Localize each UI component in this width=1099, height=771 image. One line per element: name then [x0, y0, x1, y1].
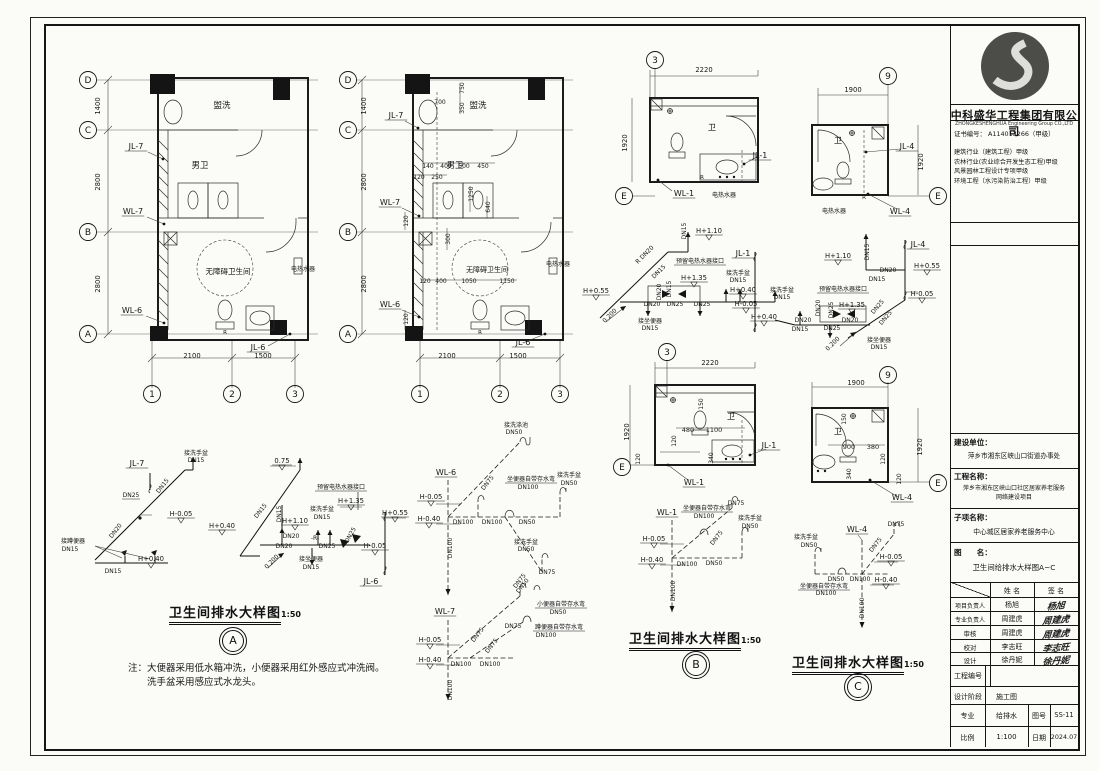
svg-text:接洗手盆: 接洗手盆	[557, 471, 581, 479]
svg-text:男卫: 男卫	[191, 161, 209, 171]
drawing-label: R	[862, 195, 866, 201]
drawing-label: 1100	[706, 426, 723, 434]
svg-text:电热水器: 电热水器	[546, 260, 570, 268]
drawing-label: DN25	[319, 543, 336, 550]
qualification-2: 农林行业(农业综合开发生态工程)甲级	[954, 158, 1076, 168]
drawing-label: R DN20	[634, 244, 655, 265]
svg-text:DN100: DN100	[670, 581, 677, 602]
drawing-label: H-0.05	[416, 636, 444, 649]
plan-d2-drain	[812, 382, 930, 497]
grid-bubble-3: 3	[552, 386, 569, 403]
svg-text:DN75: DN75	[470, 626, 486, 644]
svg-text:电热水器: 电热水器	[822, 207, 846, 215]
svg-text:R: R	[862, 195, 866, 201]
svg-text:2800: 2800	[360, 173, 368, 190]
svg-text:150: 150	[841, 413, 848, 425]
drawing-label: H+0.55	[913, 262, 941, 275]
drawing-label: 2100	[438, 352, 455, 360]
drawing-label: 750	[459, 82, 466, 94]
drawing-label: H-0.05	[877, 553, 905, 566]
svg-text:2220: 2220	[695, 66, 712, 74]
drawing-label: DN75	[480, 474, 496, 492]
drawing-label: H+0.40	[750, 313, 778, 326]
svg-text:JL-7: JL-7	[388, 111, 404, 120]
svg-text:JL-1: JL-1	[752, 151, 768, 160]
svg-text:C: C	[345, 126, 351, 136]
svg-text:1920: 1920	[623, 423, 631, 440]
drawing-label: JL-7	[385, 111, 408, 120]
table-corner-diagonal	[950, 582, 990, 597]
header-name: 姓 名	[990, 586, 1034, 596]
drawing-label: DN20	[815, 299, 822, 316]
drawing-label: DN15	[105, 568, 122, 575]
svg-text:DN50: DN50	[828, 576, 845, 583]
drawing-label: 1920	[917, 153, 925, 170]
drawing-label: WL-7	[434, 607, 457, 616]
drawing-label: DN75	[539, 569, 556, 576]
drawing-label: H+1.35	[337, 497, 365, 510]
note-line-1: 注：大便器采用低水箱冲洗，小便器采用红外感应式冲洗阀。	[128, 662, 458, 676]
svg-text:电热水器: 电热水器	[291, 265, 315, 273]
grid-bubble-1: 1	[412, 386, 429, 403]
drawing-label: 坐便器自带存水弯	[505, 475, 557, 483]
drawing-name-value: 卫生间给排水大样图A~C	[950, 562, 1078, 573]
drawing-label: DN50	[519, 519, 536, 526]
svg-text:DN50: DN50	[561, 480, 578, 487]
svg-text:DN25: DN25	[870, 298, 886, 315]
svg-text:卫: 卫	[727, 412, 735, 421]
svg-text:0.200: 0.200	[263, 553, 280, 570]
drawing-label: R	[223, 330, 227, 336]
role-2: 专业负责人	[950, 615, 990, 624]
svg-text:450: 450	[477, 163, 489, 170]
svg-text:H+0.40: H+0.40	[138, 555, 164, 563]
drawing-label: H-0.05	[908, 290, 936, 303]
plan-a-walls	[150, 74, 308, 341]
drawing-label: DN100	[850, 576, 871, 583]
drawing-label: DN25	[122, 492, 140, 499]
plan-a-grid	[96, 76, 318, 388]
svg-text:2100: 2100	[438, 352, 455, 360]
date-label: 日期	[1028, 733, 1050, 743]
svg-text:DN50: DN50	[506, 429, 523, 436]
drawing-label: 120	[413, 174, 425, 181]
svg-text:WL-4: WL-4	[890, 207, 910, 216]
drawing-label: 2220	[695, 66, 712, 74]
grid-bubble-9: 9	[880, 367, 897, 384]
qualification-3: 风景园林工程设计专项甲级	[954, 167, 1076, 177]
svg-text:1400: 1400	[360, 97, 368, 114]
drawing-label: DN15	[314, 514, 331, 521]
svg-text:JL-7: JL-7	[128, 142, 144, 151]
svg-text:1920: 1920	[621, 134, 629, 151]
drawing-label: 1920	[621, 134, 629, 151]
svg-text:120: 120	[413, 174, 425, 181]
grid-bubble-A: A	[340, 326, 357, 343]
grid-bubble-E: E	[930, 188, 947, 205]
drawing-label: 卫	[727, 412, 735, 421]
drawing-label: 0.200	[263, 553, 280, 570]
drawing-label: DN15	[681, 222, 688, 239]
svg-text:DN50: DN50	[742, 523, 759, 530]
svg-text:H+1.10: H+1.10	[282, 517, 308, 525]
drawing-label: DN100	[694, 513, 715, 520]
svg-text:JL-1: JL-1	[761, 441, 777, 450]
svg-text:340: 340	[708, 452, 715, 464]
drawing-label: 坐便器自带存水弯	[798, 582, 850, 590]
drawing-label: 2800	[94, 275, 102, 292]
drawing-label: JL-7	[125, 142, 148, 151]
svg-text:DN100: DN100	[447, 538, 454, 559]
figure-title-a: 卫生间排水大样图1:50	[155, 602, 315, 625]
svg-text:接坐便器: 接坐便器	[299, 555, 323, 563]
stage-label: 设计阶段	[954, 692, 982, 702]
svg-text:DN15: DN15	[774, 294, 791, 301]
svg-text:3: 3	[664, 348, 670, 358]
drawing-label: 盥洗	[469, 100, 487, 111]
drawing-label: WL-1	[656, 508, 679, 517]
drawing-label: 预留电热水器接口	[674, 257, 726, 265]
drawing-label: 接洗手盆	[726, 269, 750, 277]
svg-text:DN75: DN75	[728, 500, 745, 507]
svg-text:250: 250	[431, 174, 443, 181]
drawing-label: JL-4	[907, 240, 930, 249]
svg-text:卫: 卫	[708, 123, 716, 132]
svg-text:H-0.40: H-0.40	[875, 576, 898, 584]
drawing-label: H+0.40	[208, 522, 236, 535]
drawing-label: WL-4	[846, 525, 869, 534]
drawing-label: 0.75	[272, 457, 292, 470]
drawing-label: DN75	[728, 500, 745, 507]
svg-text:DN25: DN25	[694, 301, 711, 308]
drawing-label: DN100	[453, 519, 474, 526]
svg-text:H-0.05: H-0.05	[643, 535, 666, 543]
svg-text:DN25: DN25	[123, 492, 140, 499]
svg-text:DN100: DN100	[518, 484, 539, 491]
sheet-no-label: 图号	[1028, 711, 1050, 721]
svg-text:DN15: DN15	[869, 276, 886, 283]
drawing-label: 400	[440, 163, 452, 170]
drawing-label: 0.200	[824, 335, 841, 352]
drawing-label: 340	[846, 468, 853, 480]
drawing-label: DN20	[108, 522, 124, 540]
svg-text:预留电热水器接口: 预留电热水器接口	[317, 483, 365, 491]
svg-text:DN25: DN25	[828, 301, 835, 318]
drawing-label: WL-6	[379, 300, 402, 309]
drawing-label: DN20	[283, 533, 300, 540]
svg-text:接洗手盆: 接洗手盆	[738, 514, 762, 522]
owner-value: 萍乡市湘东区峡山口街道办事处	[950, 450, 1078, 460]
figure-title-c-text: 卫生间排水大样图	[792, 652, 904, 675]
date-value: 2024.07	[1050, 733, 1078, 741]
svg-text:500: 500	[458, 163, 470, 170]
company-logo	[981, 32, 1049, 100]
drawing-label: H-0.05	[640, 535, 668, 548]
svg-text:9: 9	[885, 72, 891, 82]
svg-text:B: B	[85, 228, 91, 238]
drawing-label: 男卫	[191, 161, 209, 171]
svg-text:DN25: DN25	[824, 325, 841, 332]
drawing-label: DN25	[824, 325, 841, 332]
svg-text:C: C	[85, 126, 91, 136]
svg-text:JL-6: JL-6	[250, 343, 266, 352]
grid-bubble-D: D	[340, 72, 357, 89]
svg-text:120: 120	[635, 453, 642, 465]
svg-text:400: 400	[435, 278, 447, 285]
svg-text:380: 380	[867, 443, 879, 451]
svg-text:接坐便器: 接坐便器	[867, 336, 891, 344]
svg-text:120: 120	[403, 215, 410, 227]
drawing-label: JL-4	[896, 142, 919, 151]
note-line-2: 洗手盆采用感应式水龙头。	[128, 676, 458, 690]
figure-title-b-text: 卫生间排水大样图	[629, 628, 741, 651]
svg-text:H+1.35: H+1.35	[839, 301, 865, 309]
svg-text:1920: 1920	[916, 438, 924, 455]
svg-text:1500: 1500	[509, 352, 526, 360]
drawing-label: 卫	[834, 427, 842, 436]
svg-text:1900: 1900	[844, 86, 861, 94]
drawing-label: 电热水器	[712, 191, 736, 199]
drawing-label: H-0.40	[872, 576, 900, 589]
drawing-label: DN20	[644, 301, 661, 308]
drawing-label: 1050	[461, 278, 476, 285]
grid-bubble-B: B	[80, 224, 97, 241]
svg-text:无障碍卫生间: 无障碍卫生间	[206, 266, 251, 276]
svg-text:480: 480	[682, 426, 694, 434]
drawing-label: 2220	[701, 359, 718, 367]
svg-text:WL-6: WL-6	[436, 468, 456, 477]
svg-text:接洗手盆: 接洗手盆	[726, 269, 750, 277]
svg-text:120: 120	[419, 278, 431, 285]
drawing-label: 120	[403, 215, 410, 227]
drawing-label: WL-1	[673, 189, 696, 198]
drawing-label: H-0.40	[415, 515, 443, 528]
drawing-label: 480	[682, 426, 694, 434]
grid-bubble-C: C	[80, 122, 97, 139]
drawing-label: 380	[867, 443, 879, 451]
svg-text:接洗手盆: 接洗手盆	[514, 538, 538, 546]
drawing-label: DN50	[801, 542, 818, 549]
drawing-label: 预留电热水器接口	[315, 483, 367, 491]
drawing-label: 700	[434, 99, 446, 106]
drawing-label: 电热水器	[546, 260, 570, 268]
svg-text:DN15: DN15	[681, 222, 688, 239]
svg-text:DN100: DN100	[850, 576, 871, 583]
drawing-label: 卫	[708, 123, 716, 132]
drawing-label: DN100	[518, 484, 539, 491]
drawing-label: DN15	[303, 564, 320, 571]
drawing-label: 150	[698, 398, 705, 410]
figure-title-a-text: 卫生间排水大样图	[169, 602, 281, 625]
drawing-label: DN15	[774, 294, 791, 301]
project-value-2: 网络建设项目	[950, 492, 1078, 501]
svg-text:WL-1: WL-1	[684, 478, 704, 487]
drawing-name-label: 图 名：	[954, 547, 992, 558]
drawing-label: DN50	[550, 609, 567, 616]
svg-text:B: B	[345, 228, 351, 238]
svg-text:1: 1	[149, 390, 155, 400]
drawing-label: H+1.10	[824, 252, 852, 265]
owner-label: 建设单位：	[954, 437, 992, 448]
drawing-label: DN75	[709, 529, 725, 547]
svg-text:120: 120	[671, 435, 678, 447]
drawing-label: H+0.55	[582, 287, 610, 300]
drawing-label: DN20	[656, 283, 663, 300]
drawing-label: 盥洗	[213, 100, 231, 111]
name-2: 周建虎	[990, 614, 1034, 624]
drawing-label: 1920	[916, 438, 924, 455]
role-5: 设计	[950, 656, 990, 665]
svg-text:D: D	[85, 76, 92, 86]
svg-text:1900: 1900	[847, 379, 864, 387]
svg-text:DN20: DN20	[795, 317, 812, 324]
drawing-label: H-0.05	[167, 510, 195, 523]
grid-bubble-D: D	[80, 72, 97, 89]
svg-text:R: R	[700, 175, 704, 181]
svg-text:接蹲便器: 接蹲便器	[61, 537, 85, 545]
plan-a-fixtures	[146, 100, 302, 346]
drawing-label: 1250	[468, 186, 475, 201]
drawing-label: 接洗手盆	[514, 538, 538, 546]
drawing-label: 1400	[94, 97, 102, 114]
drawing-label: 120	[403, 313, 410, 325]
svg-text:9: 9	[885, 371, 891, 381]
company-name-en: ZHONGKESHENGHUA Engineering Group CO.,LT…	[950, 122, 1078, 127]
drawing-label: JL-1	[732, 249, 755, 258]
svg-text:DN75: DN75	[709, 529, 725, 547]
svg-text:卫: 卫	[834, 427, 842, 436]
qualification-1: 建筑行业（建筑工程）甲级	[954, 148, 1076, 158]
svg-text:H+0.55: H+0.55	[583, 287, 609, 295]
svg-text:DN20: DN20	[283, 533, 300, 540]
drawing-label: DN20	[795, 317, 812, 324]
figure-ref-a: A	[222, 630, 244, 652]
drawing-label: H-0.40	[638, 556, 666, 569]
drawing-label: DN50	[561, 480, 578, 487]
scale-label: 比例	[950, 733, 985, 743]
drawing-label: DN100	[536, 632, 557, 639]
plan-c1-supply	[632, 69, 758, 196]
role-4: 校对	[950, 643, 990, 652]
svg-text:H+0.40: H+0.40	[209, 522, 235, 530]
grid-bubble-A: A	[80, 326, 97, 343]
drawing-label: 450	[477, 163, 489, 170]
svg-text:DN100: DN100	[816, 590, 837, 597]
drawing-label: 120	[880, 453, 887, 465]
svg-text:DN20: DN20	[644, 301, 661, 308]
header-sign: 签 名	[1034, 586, 1078, 596]
svg-text:DN100: DN100	[482, 519, 503, 526]
svg-text:R: R	[223, 330, 227, 336]
svg-text:JL-4: JL-4	[910, 240, 926, 249]
svg-text:DN15: DN15	[666, 280, 673, 297]
drawing-label: 接坐便器	[638, 317, 662, 325]
svg-text:DN20: DN20	[880, 267, 897, 274]
svg-text:DN15: DN15	[303, 564, 320, 571]
drawing-label: 1400	[360, 97, 368, 114]
name-4: 李志旺	[990, 642, 1034, 652]
drawing-label: JL-6	[247, 343, 270, 352]
svg-text:盥洗: 盥洗	[469, 100, 487, 111]
drawing-label: DN50	[706, 560, 723, 567]
drawing-label: 接坐便器	[299, 555, 323, 563]
drawing-label: DN100	[816, 590, 837, 597]
drawing-label: DN15	[871, 344, 888, 351]
svg-text:700: 700	[434, 99, 446, 106]
svg-text:DN100: DN100	[453, 519, 474, 526]
svg-text:WL-6: WL-6	[122, 306, 142, 315]
drawing-label: DN15	[62, 546, 79, 553]
svg-text:DN15: DN15	[314, 514, 331, 521]
drawing-label: 预留电热水器接口	[817, 285, 869, 293]
svg-text:DN50: DN50	[801, 542, 818, 549]
svg-text:接洗手盆: 接洗手盆	[794, 533, 818, 541]
drawing-label: 1500	[254, 352, 271, 360]
svg-text:-R-: -R-	[311, 535, 319, 542]
svg-text:H+1.10: H+1.10	[696, 227, 722, 235]
svg-text:接洗手盆: 接洗手盆	[310, 505, 334, 513]
svg-text:DN15: DN15	[730, 277, 747, 284]
drawing-label: DN15	[792, 326, 809, 333]
subproject-value: 中心城区居家养老服务中心	[950, 526, 1078, 536]
svg-text:JL-4: JL-4	[899, 142, 915, 151]
drawing-label: 1900	[844, 86, 861, 94]
svg-text:1050: 1050	[461, 278, 476, 285]
drawing-label: 坐便器自带存水弯	[681, 504, 733, 512]
grid-bubble-2: 2	[492, 386, 509, 403]
scale-value: 1:100	[985, 733, 1028, 741]
svg-text:DN75: DN75	[888, 521, 905, 528]
svg-text:DN20: DN20	[276, 543, 293, 550]
drawing-label: JL-7	[126, 459, 149, 468]
svg-text:H-0.05: H-0.05	[880, 553, 903, 561]
svg-text:120: 120	[403, 313, 410, 325]
svg-text:WL-7: WL-7	[123, 207, 143, 216]
drawing-label: 接洗涤池	[504, 421, 528, 429]
drawing-label: DN75	[888, 521, 905, 528]
svg-text:DN15: DN15	[871, 344, 888, 351]
svg-text:1150: 1150	[499, 278, 514, 285]
svg-text:120: 120	[880, 453, 887, 465]
drawing-label: WL-6	[435, 468, 458, 477]
drawing-label: JL-1	[758, 441, 781, 450]
drawing-label: DN15	[730, 277, 747, 284]
svg-text:1100: 1100	[706, 426, 723, 434]
svg-text:坐便器自带存水弯: 坐便器自带存水弯	[800, 582, 848, 590]
svg-text:E: E	[619, 463, 625, 473]
figure-ref-b: B	[685, 654, 707, 676]
svg-text:0.75: 0.75	[274, 457, 289, 465]
project-no-label: 工程编号	[954, 671, 982, 681]
drawing-label: JL-6	[360, 577, 383, 586]
cert-number: 证书编号： A114013266（甲级）	[954, 129, 1078, 138]
svg-text:640: 640	[485, 201, 492, 213]
drawing-label: 接洗手盆	[794, 533, 818, 541]
drawing-label: 1920	[623, 423, 631, 440]
drawing-label: DN15	[642, 325, 659, 332]
drawing-label: 1150	[499, 278, 514, 285]
drawing-label: DN25	[870, 298, 886, 315]
drawing-label: 0.200	[601, 307, 618, 324]
svg-text:WL-6: WL-6	[380, 300, 400, 309]
name-5: 徐丹妮	[990, 655, 1034, 665]
drawing-label: 2100	[183, 352, 200, 360]
svg-text:A: A	[85, 330, 92, 340]
drawing-label: DN15	[666, 280, 673, 297]
svg-text:DN75: DN75	[868, 536, 884, 554]
svg-text:DN25: DN25	[878, 309, 894, 326]
drawing-label: 2800	[94, 173, 102, 190]
